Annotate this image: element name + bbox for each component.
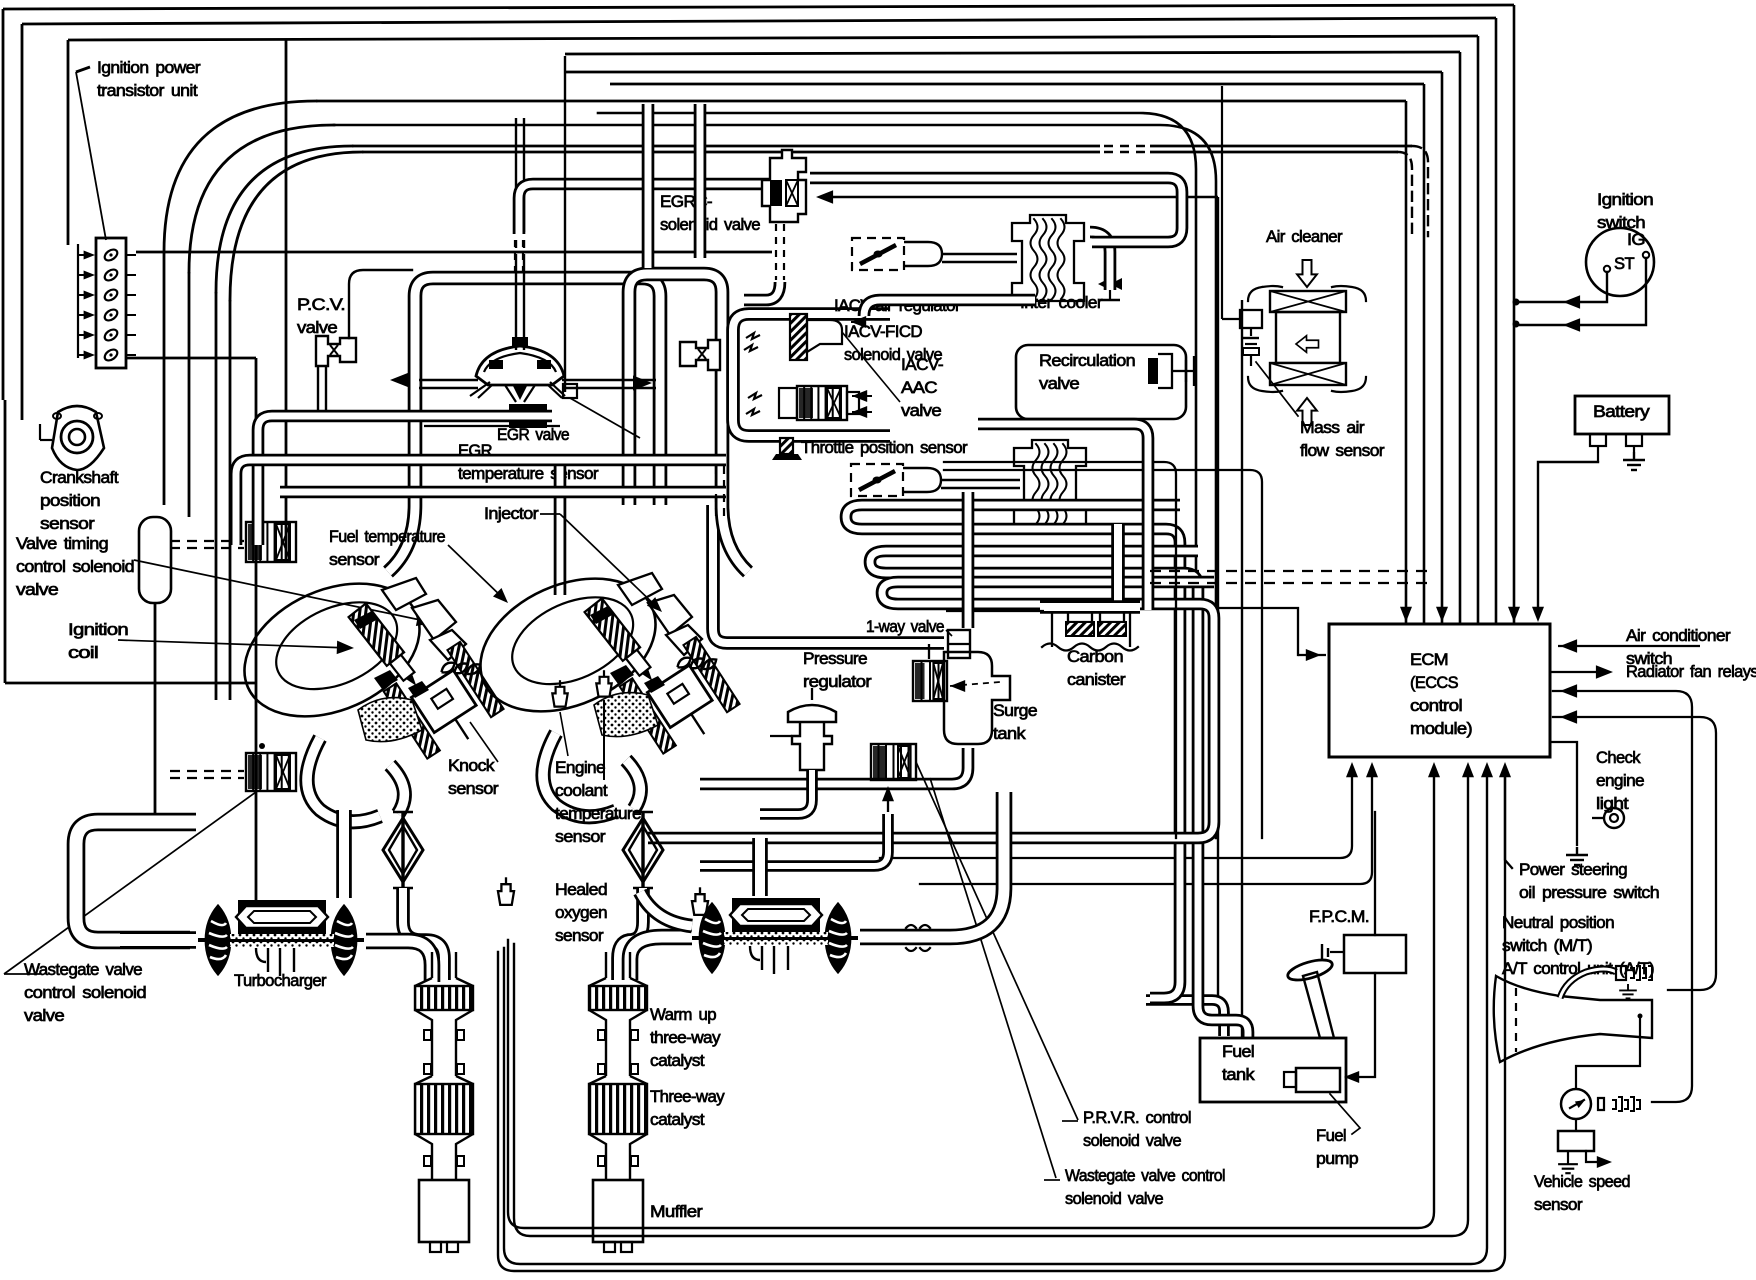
svg-text:control: control bbox=[1410, 697, 1462, 715]
svg-text:sensor: sensor bbox=[40, 515, 95, 533]
svg-text:switch (M/T): switch (M/T) bbox=[1502, 937, 1592, 955]
svg-text:control solenoid: control solenoid bbox=[16, 558, 134, 576]
svg-text:Ignition power: Ignition power bbox=[97, 59, 201, 77]
svg-text:Healed: Healed bbox=[555, 881, 607, 899]
svg-text:control solenoid: control solenoid bbox=[24, 984, 146, 1002]
svg-text:tank: tank bbox=[1222, 1066, 1255, 1084]
svg-text:sensor: sensor bbox=[329, 551, 380, 569]
svg-text:Throttle position sensor: Throttle position sensor bbox=[801, 439, 968, 457]
svg-text:solenoid valve: solenoid valve bbox=[1065, 1190, 1163, 1208]
svg-text:solenoid valve: solenoid valve bbox=[1083, 1132, 1181, 1150]
svg-text:coil: coil bbox=[68, 644, 98, 662]
svg-text:position: position bbox=[40, 492, 100, 510]
svg-text:transistor unit: transistor unit bbox=[97, 82, 198, 100]
svg-text:flow sensor: flow sensor bbox=[1300, 442, 1385, 460]
svg-text:Knock: Knock bbox=[448, 757, 495, 775]
svg-text:valve: valve bbox=[1039, 375, 1079, 393]
svg-text:oxygen: oxygen bbox=[555, 904, 607, 922]
svg-text:Turbocharger: Turbocharger bbox=[234, 972, 327, 990]
svg-text:oil pressure switch: oil pressure switch bbox=[1519, 884, 1659, 902]
svg-text:Air cleaner: Air cleaner bbox=[1266, 228, 1343, 246]
svg-text:valve: valve bbox=[16, 581, 58, 599]
svg-text:EGR valve: EGR valve bbox=[497, 426, 569, 444]
svg-text:engine: engine bbox=[1596, 772, 1644, 790]
svg-text:P.R.V.R. control: P.R.V.R. control bbox=[1083, 1109, 1191, 1127]
svg-text:valve: valve bbox=[901, 402, 941, 420]
svg-text:Pressure: Pressure bbox=[803, 650, 867, 668]
svg-text:P.C.V.: P.C.V. bbox=[297, 296, 345, 314]
svg-text:Warm up: Warm up bbox=[650, 1006, 716, 1024]
svg-text:catalyst: catalyst bbox=[650, 1052, 705, 1070]
svg-text:valve: valve bbox=[297, 319, 337, 337]
svg-text:pump: pump bbox=[1316, 1150, 1358, 1168]
svg-text:Recirculation: Recirculation bbox=[1039, 352, 1135, 370]
svg-text:Wastegate valve control: Wastegate valve control bbox=[1065, 1167, 1225, 1185]
svg-text:Three-way: Three-way bbox=[650, 1088, 725, 1106]
svg-text:Crankshaft: Crankshaft bbox=[40, 469, 119, 487]
svg-text:Battery: Battery bbox=[1593, 403, 1651, 421]
svg-text:Vehicle speed: Vehicle speed bbox=[1534, 1173, 1630, 1191]
svg-text:sensor: sensor bbox=[1534, 1196, 1583, 1214]
svg-text:IACV-FICD: IACV-FICD bbox=[844, 323, 923, 341]
svg-text:AAC: AAC bbox=[901, 379, 938, 397]
svg-text:Fuel: Fuel bbox=[1316, 1127, 1346, 1145]
svg-text:Valve timing: Valve timing bbox=[16, 535, 108, 553]
svg-text:Injector: Injector bbox=[484, 505, 539, 523]
svg-text:catalyst: catalyst bbox=[650, 1111, 705, 1129]
svg-text:valve: valve bbox=[24, 1007, 64, 1025]
svg-text:canister: canister bbox=[1067, 671, 1126, 689]
svg-text:Fuel: Fuel bbox=[1222, 1043, 1254, 1061]
svg-text:Power steering: Power steering bbox=[1519, 861, 1627, 879]
svg-text:temperature sensor: temperature sensor bbox=[458, 465, 599, 483]
svg-text:IG: IG bbox=[1627, 231, 1645, 249]
svg-text:(ECCS: (ECCS bbox=[1410, 674, 1459, 692]
svg-text:sensor: sensor bbox=[555, 927, 604, 945]
svg-text:regulator: regulator bbox=[803, 673, 872, 691]
svg-text:Check: Check bbox=[1596, 749, 1641, 767]
svg-text:module): module) bbox=[1410, 720, 1472, 738]
svg-text:Surge: Surge bbox=[993, 702, 1037, 720]
svg-text:tank: tank bbox=[993, 725, 1026, 743]
svg-text:IACV-: IACV- bbox=[901, 356, 943, 374]
svg-text:light: light bbox=[1596, 795, 1629, 813]
svg-text:Neutral position: Neutral position bbox=[1502, 914, 1614, 932]
svg-text:1-way valve: 1-way valve bbox=[866, 618, 944, 636]
svg-text:three-way: three-way bbox=[650, 1029, 721, 1047]
svg-text:sensor: sensor bbox=[448, 780, 499, 798]
svg-text:Ignition: Ignition bbox=[68, 621, 129, 639]
svg-text:Air conditioner: Air conditioner bbox=[1626, 627, 1731, 645]
svg-text:solenoid valve: solenoid valve bbox=[660, 216, 760, 234]
svg-text:Mass air: Mass air bbox=[1300, 419, 1365, 437]
svg-text:F.P.C.M.: F.P.C.M. bbox=[1309, 908, 1369, 926]
svg-text:ECM: ECM bbox=[1410, 651, 1448, 669]
svg-text:Muffler: Muffler bbox=[650, 1203, 703, 1221]
svg-text:Wastegate valve: Wastegate valve bbox=[24, 961, 142, 979]
svg-text:temperature: temperature bbox=[555, 805, 641, 823]
svg-text:Engine: Engine bbox=[555, 759, 605, 777]
svg-text:ST: ST bbox=[1614, 255, 1635, 273]
svg-text:coolant: coolant bbox=[555, 782, 608, 800]
svg-text:Ignition: Ignition bbox=[1597, 191, 1653, 209]
svg-text:Radiator fan relays: Radiator fan relays bbox=[1626, 663, 1756, 681]
svg-text:Fuel temperature: Fuel temperature bbox=[329, 528, 445, 546]
svg-text:Carbon: Carbon bbox=[1067, 648, 1123, 666]
svg-text:sensor: sensor bbox=[555, 828, 606, 846]
